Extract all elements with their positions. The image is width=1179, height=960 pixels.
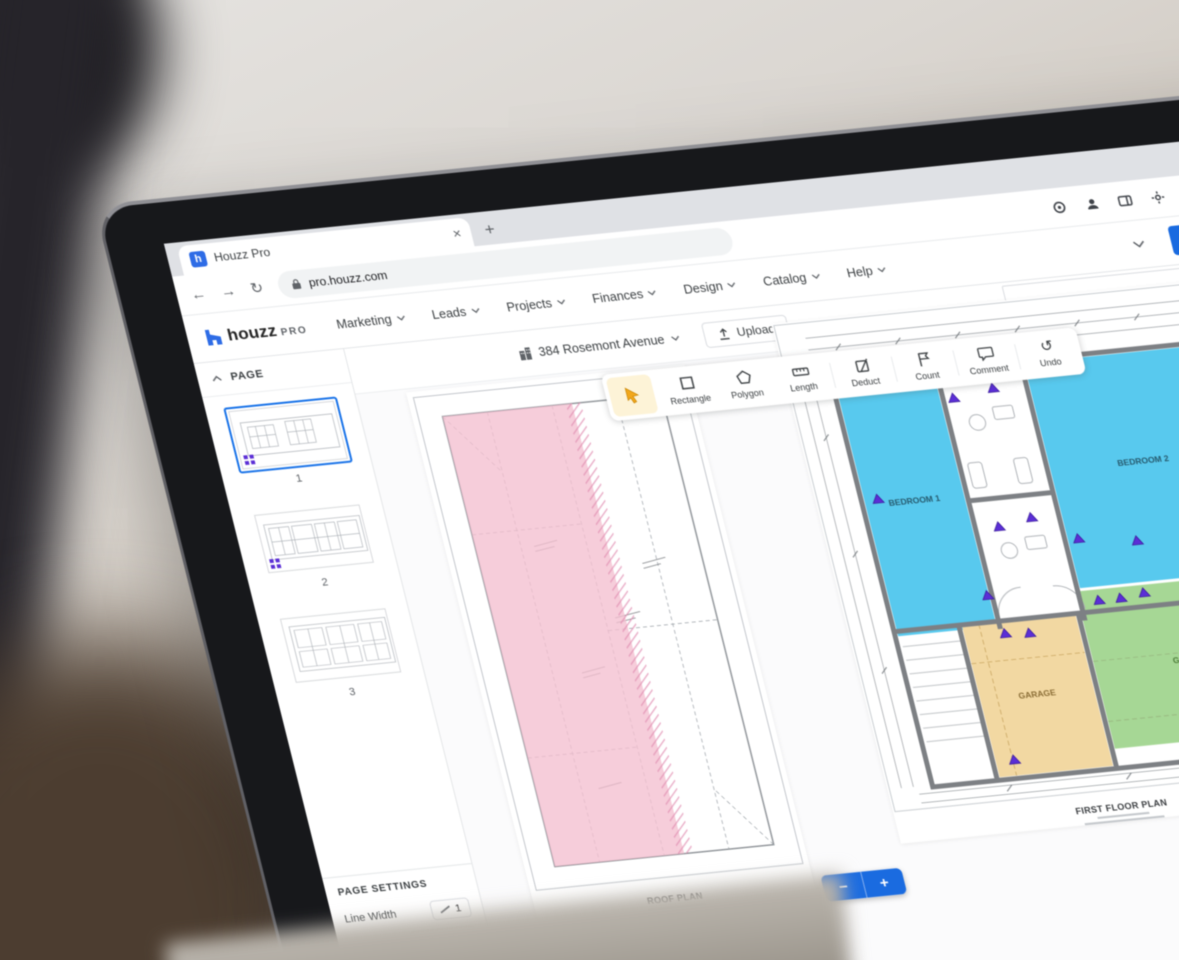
upload-label: Upload [735, 322, 776, 339]
new-tab-button[interactable]: + [481, 215, 498, 245]
houzz-h-icon [201, 326, 226, 347]
page-thumbnail-3[interactable]: 3 [275, 604, 410, 704]
nav-label: Design [682, 279, 724, 296]
tool-label: Polygon [730, 387, 765, 400]
nav-item-leads[interactable]: Leads [430, 304, 481, 322]
nav-item-projects[interactable]: Projects [505, 295, 567, 314]
reload-icon[interactable]: ↻ [248, 279, 265, 298]
undo-icon: ↺ [1039, 339, 1055, 354]
measurement-badge-icon [243, 454, 255, 465]
page-settings-title: PAGE SETTINGS [337, 875, 465, 898]
page-thumbnail-1[interactable]: 1 [223, 396, 357, 490]
thumbnail-plan-sketch [281, 609, 401, 680]
tool-label: Length [789, 381, 819, 393]
zoom-in-button[interactable]: + [861, 868, 907, 898]
nav-item-finances[interactable]: Finances [591, 286, 659, 306]
chevron-down-icon [877, 267, 887, 274]
chevron-down-icon [470, 307, 480, 314]
roof-plan-sheet[interactable]: ROOF PLAN [406, 364, 817, 922]
browser-extension-icon-1[interactable] [1051, 200, 1068, 215]
undo-button[interactable]: ↺ Undo [1015, 331, 1081, 376]
nav-label: Projects [505, 296, 553, 314]
comment-tool-button[interactable]: Comment [954, 338, 1020, 383]
chevron-down-icon [671, 335, 681, 342]
nav-label: Help [845, 264, 874, 280]
chevron-down-icon [727, 282, 737, 289]
ruler-icon [789, 364, 810, 379]
logo-text: houzz [225, 321, 279, 345]
project-address: 384 Rosemont Avenue [537, 333, 666, 359]
measurement-badge-icon [269, 558, 281, 569]
tool-label: Undo [1039, 356, 1063, 368]
tab-close-icon[interactable]: × [451, 225, 463, 241]
chevron-up-icon [211, 375, 222, 382]
length-tool-button[interactable]: Length [769, 356, 835, 401]
nav-item-design[interactable]: Design [682, 278, 738, 297]
rectangle-icon [677, 375, 697, 392]
page-panel-title: PAGE [229, 368, 265, 383]
count-tool-button[interactable]: Count [892, 344, 958, 389]
chevron-down-icon [396, 315, 406, 322]
select-tool-button[interactable] [605, 374, 658, 417]
page-thumbnail-2[interactable]: 2 [249, 500, 383, 594]
roof-plan-drawing [406, 364, 810, 896]
browser-menu-gear-icon[interactable] [1149, 190, 1166, 205]
building-icon [517, 346, 533, 361]
lock-icon [289, 278, 302, 291]
cursor-icon [621, 386, 642, 405]
nav-label: Finances [591, 287, 645, 306]
back-icon[interactable]: ← [189, 285, 208, 303]
comment-icon [975, 345, 995, 361]
tool-label: Count [914, 370, 940, 382]
rectangle-tool-button[interactable]: Rectangle [655, 368, 721, 413]
nav-item-help[interactable]: Help [845, 263, 888, 281]
project-selector[interactable]: 384 Rosemont Avenue [517, 331, 682, 361]
chevron-down-icon [810, 273, 820, 280]
tool-label: Rectangle [669, 393, 712, 407]
nav-item-marketing[interactable]: Marketing [335, 311, 407, 331]
browser-sidepanel-icon[interactable] [1116, 193, 1133, 208]
deduct-tool-button[interactable]: Deduct [830, 350, 896, 395]
chevron-down-icon [647, 290, 657, 297]
upload-icon [716, 327, 731, 341]
forward-icon[interactable]: → [219, 282, 238, 300]
collapse-panel-chevron-icon[interactable] [1132, 240, 1146, 249]
url-text: pro.houzz.com [307, 268, 389, 289]
nav-label: Catalog [762, 271, 808, 289]
review-button[interactable]: Review [1167, 210, 1179, 256]
nav-label: Marketing [335, 313, 393, 332]
logo-pro-text: PRO [280, 325, 309, 338]
browser-profile-icon[interactable] [1084, 197, 1101, 212]
line-width-icon [439, 905, 451, 914]
nav-item-catalog[interactable]: Catalog [762, 269, 822, 288]
flag-icon [915, 351, 933, 368]
chevron-down-icon [556, 299, 566, 306]
polygon-icon [733, 369, 753, 386]
houzz-favicon: h [188, 251, 208, 268]
laptop-screen: h Houzz Pro × + ← → ↻ pro.houzz.com [164, 94, 1179, 960]
polygon-tool-button[interactable]: Polygon [712, 362, 778, 407]
tool-label: Comment [969, 362, 1010, 376]
tool-label: Deduct [850, 376, 881, 389]
deduct-icon [852, 357, 872, 374]
houzz-pro-logo[interactable]: houzz PRO [201, 318, 309, 348]
nav-label: Leads [430, 305, 467, 322]
